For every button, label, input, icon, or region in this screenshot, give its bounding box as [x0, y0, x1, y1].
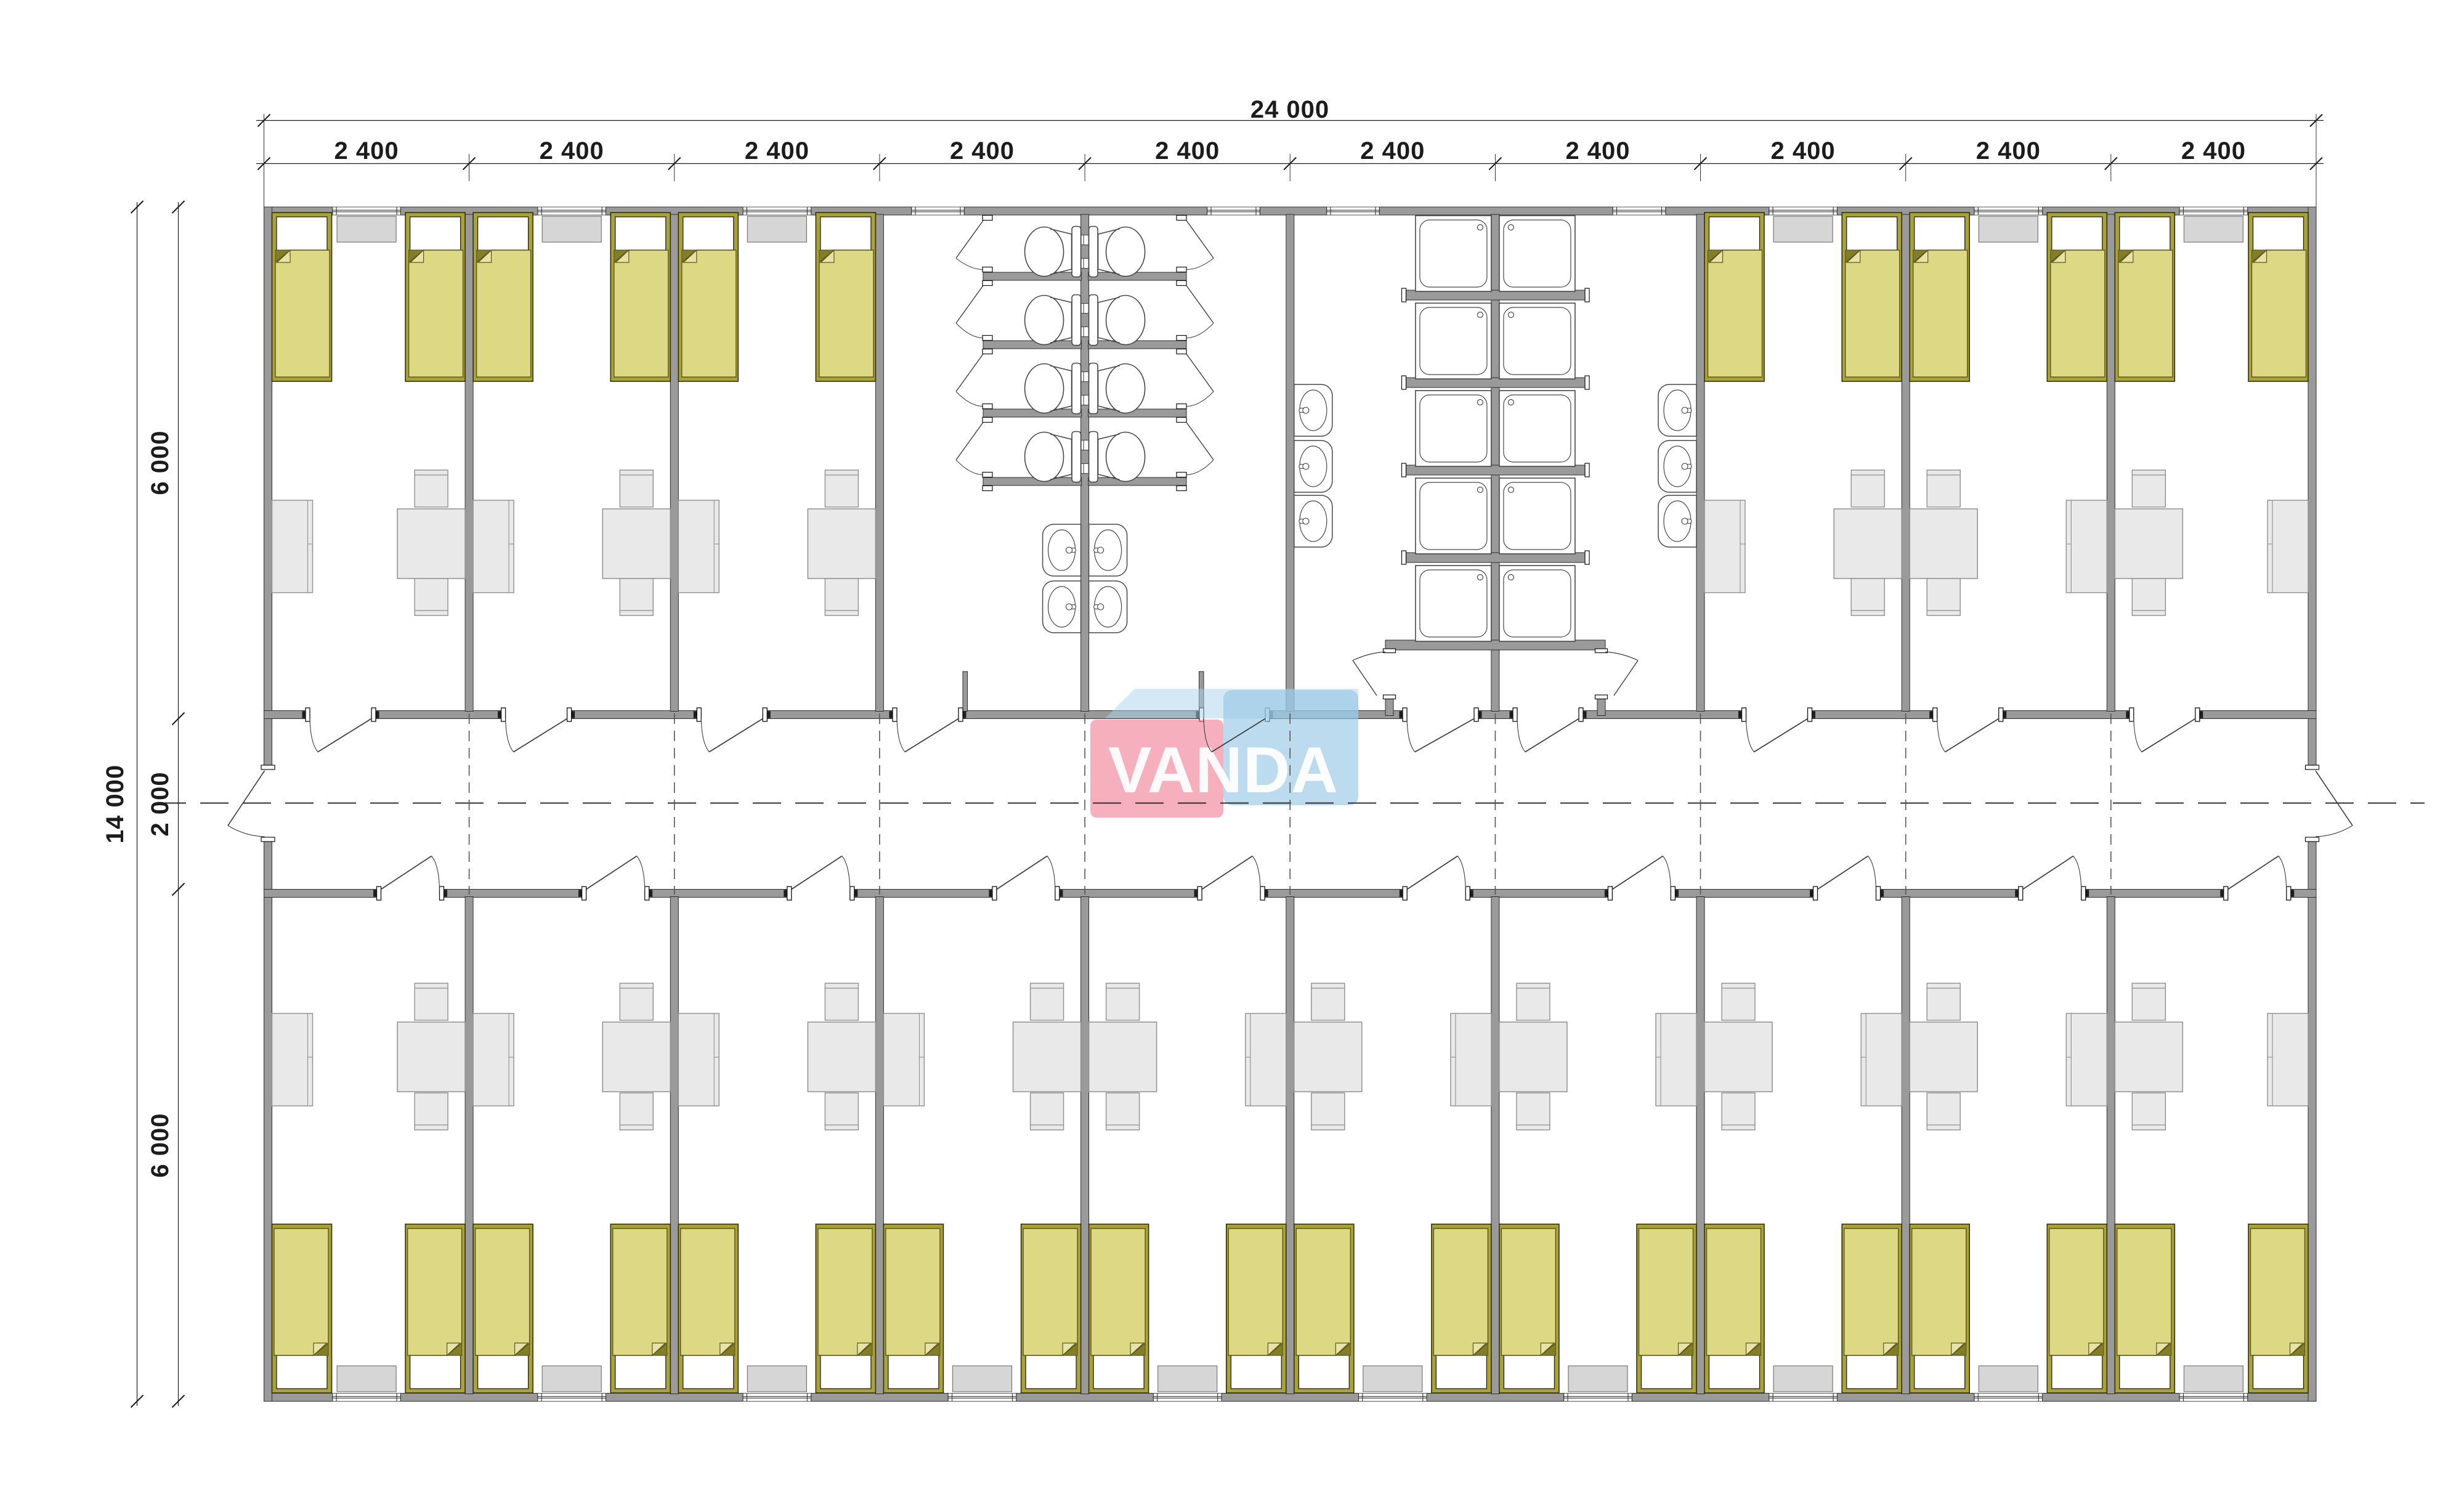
svg-text:2 400: 2 400	[1360, 137, 1425, 164]
svg-text:2 400: 2 400	[950, 137, 1015, 164]
svg-text:14 000: 14 000	[102, 765, 129, 843]
svg-text:2 400: 2 400	[1976, 137, 2041, 164]
svg-text:2 400: 2 400	[1565, 137, 1630, 164]
svg-text:2 400: 2 400	[2181, 137, 2246, 164]
svg-text:2 400: 2 400	[540, 137, 604, 164]
svg-text:6 000: 6 000	[147, 430, 174, 495]
svg-text:2 400: 2 400	[1155, 137, 1220, 164]
svg-text:2 400: 2 400	[1771, 137, 1836, 164]
svg-text:24 000: 24 000	[1250, 96, 1329, 123]
svg-text:2 400: 2 400	[334, 137, 399, 164]
svg-text:2 400: 2 400	[745, 137, 809, 164]
svg-text:2 000: 2 000	[147, 771, 174, 836]
svg-text:6 000: 6 000	[147, 1113, 174, 1177]
